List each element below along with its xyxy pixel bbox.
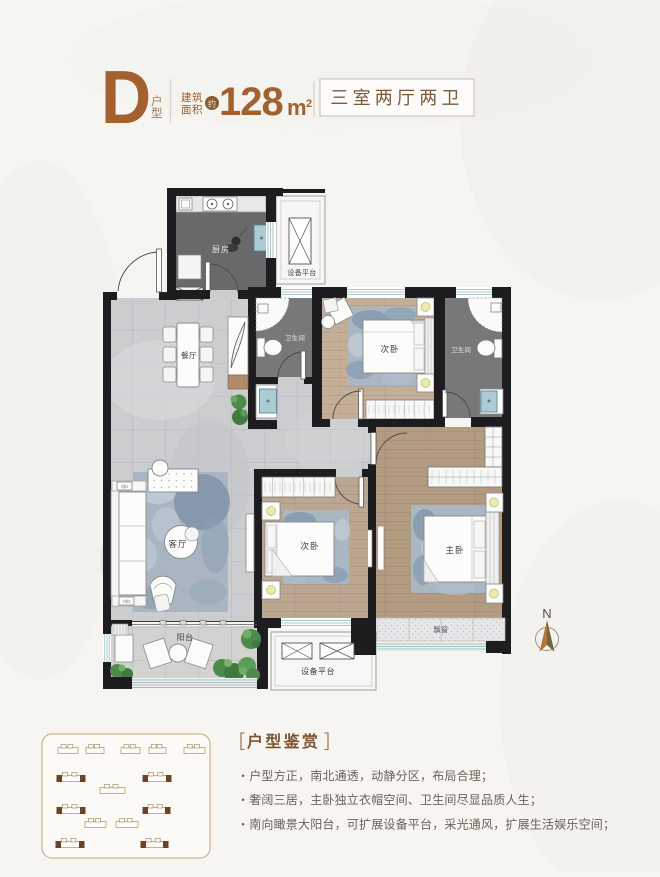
svg-text:设备平台: 设备平台 xyxy=(287,268,316,278)
svg-text:m: m xyxy=(287,95,307,120)
svg-text:·户型方正，南北通透，动静分区，布局合理；: ·户型方正，南北通透，动静分区，布局合理； xyxy=(237,767,493,784)
svg-text:卫生间: 卫生间 xyxy=(451,344,471,354)
svg-text:三室两厅两卫: 三室两厅两卫 xyxy=(330,84,463,110)
svg-text:餐厅: 餐厅 xyxy=(181,350,197,361)
svg-text:飘窗: 飘窗 xyxy=(434,625,449,635)
svg-text:主卧: 主卧 xyxy=(445,544,464,556)
svg-text:2: 2 xyxy=(306,98,312,110)
svg-text:o|o: o|o xyxy=(121,484,128,490)
svg-text:阳台: 阳台 xyxy=(177,632,194,643)
svg-text:客厅: 客厅 xyxy=(168,538,187,550)
svg-text:次卧: 次卧 xyxy=(380,343,399,355)
svg-text:厨房: 厨房 xyxy=(212,244,230,255)
svg-text:设备平台: 设备平台 xyxy=(301,666,335,677)
svg-text:约: 约 xyxy=(208,99,216,110)
svg-text:128: 128 xyxy=(219,80,283,124)
svg-text:面积: 面积 xyxy=(181,102,203,117)
svg-text:次卧: 次卧 xyxy=(300,540,319,552)
svg-text:o|o: o|o xyxy=(123,599,130,605)
svg-text:户型鉴赏: 户型鉴赏 xyxy=(247,728,320,752)
svg-text:·奢阔三居，主卧独立衣帽空间、卫生间尽显品质人生；: ·奢阔三居，主卧独立衣帽空间、卫生间尽显品质人生； xyxy=(237,791,542,808)
svg-text:·南向瞰景大阳台，可扩展设备平台，采光通风，扩展生活娱乐空间: ·南向瞰景大阳台，可扩展设备平台，采光通风，扩展生活娱乐空间； xyxy=(237,816,615,833)
svg-text:型: 型 xyxy=(151,105,163,121)
svg-text:D: D xyxy=(101,56,151,140)
svg-text:N: N xyxy=(542,606,551,621)
svg-text:卫生间: 卫生间 xyxy=(285,332,305,342)
